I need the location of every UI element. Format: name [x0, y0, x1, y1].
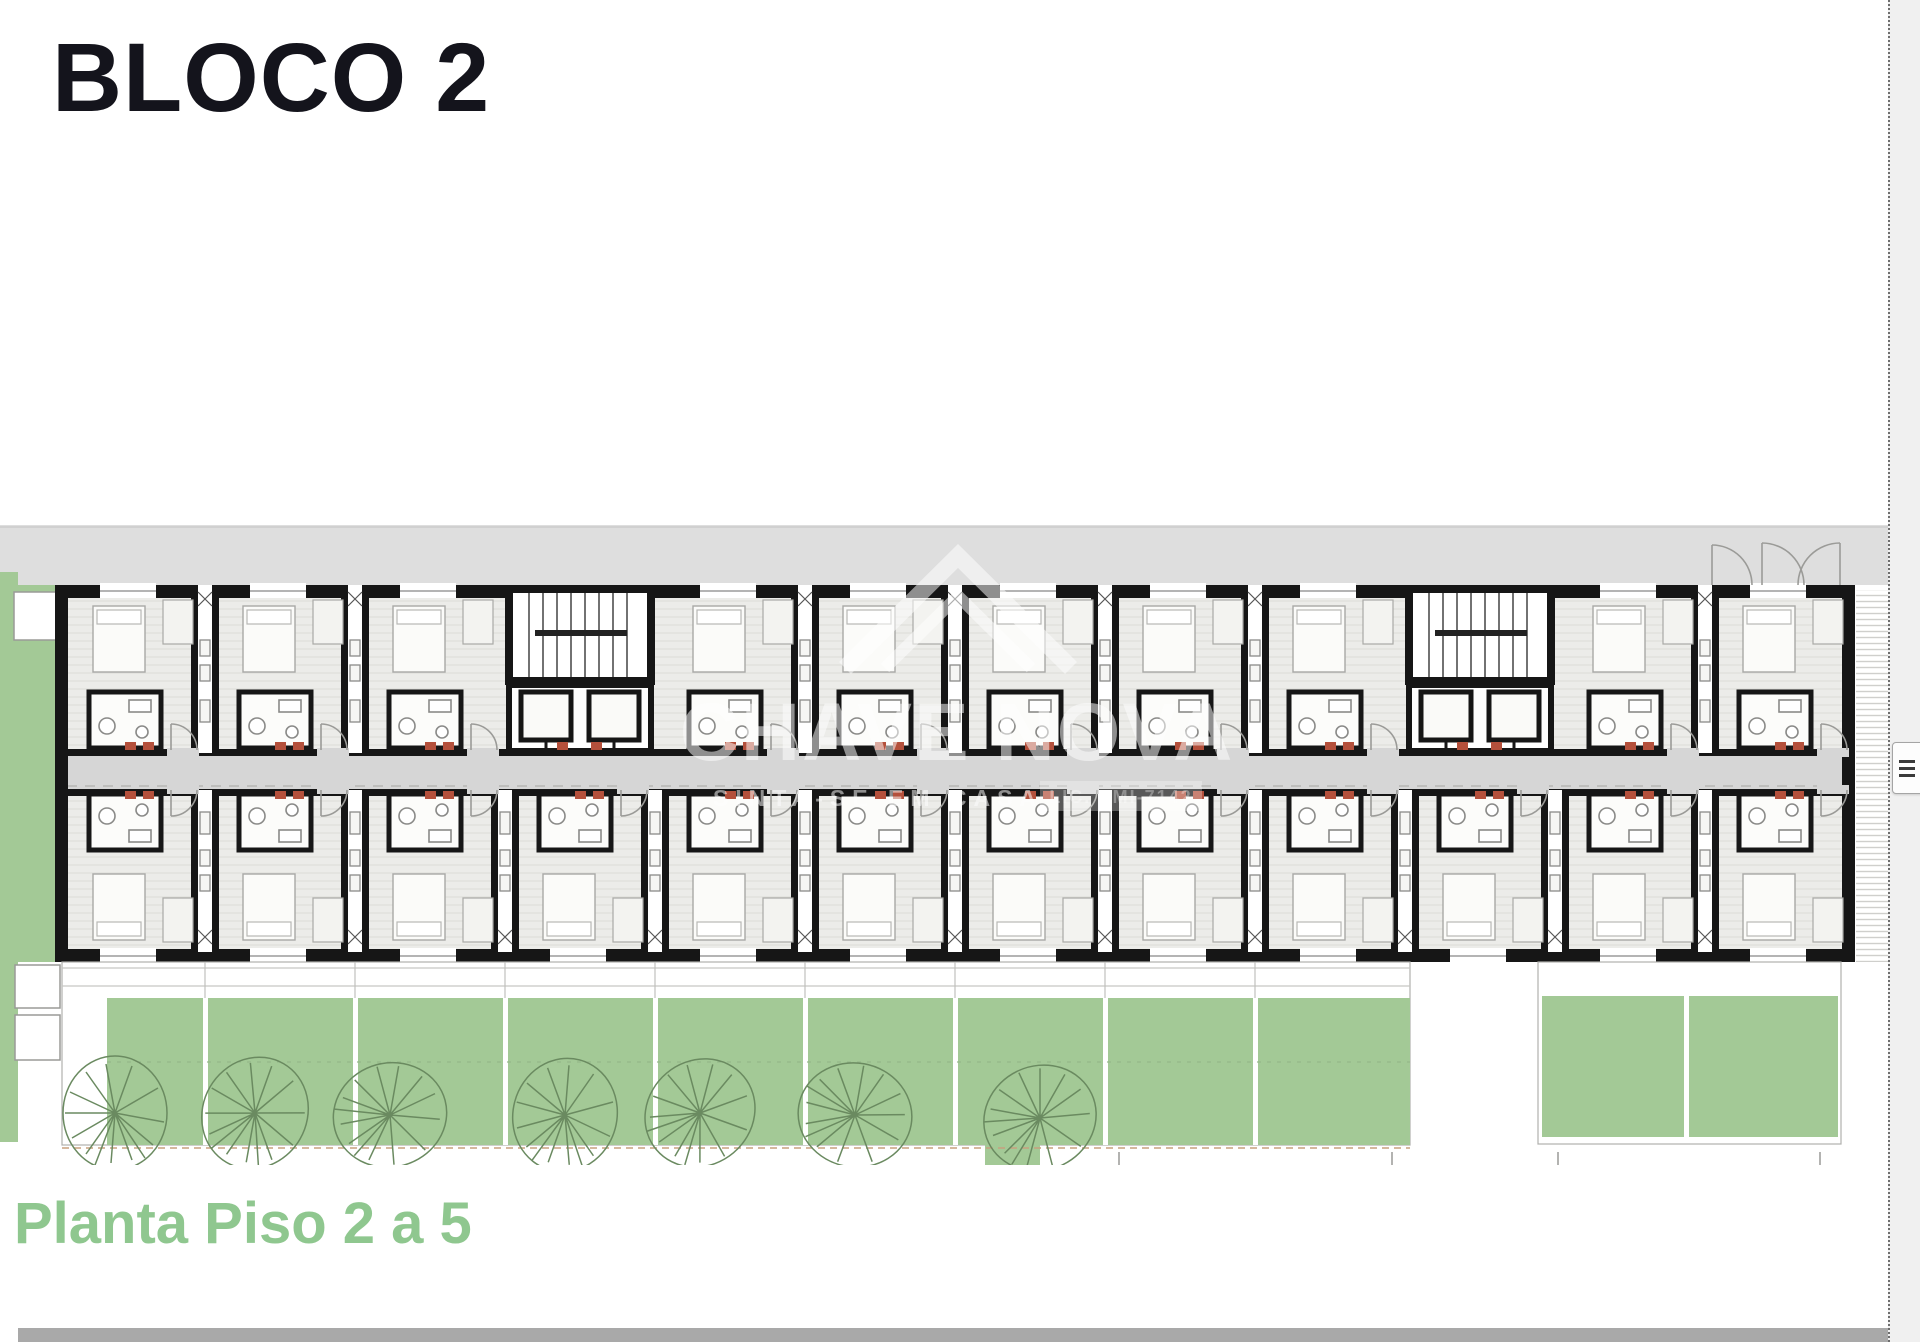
unit-divider	[1391, 790, 1419, 952]
unit-divider	[1241, 790, 1269, 952]
watermark-brand: CHAVE NOVA	[680, 687, 1235, 778]
unit-divider	[1541, 790, 1569, 952]
unit-divider	[191, 585, 219, 753]
grip-lines-icon	[1899, 760, 1915, 777]
site-lines	[62, 1148, 1820, 1165]
page-title: BLOCO 2	[52, 22, 490, 134]
unit-divider	[1691, 585, 1719, 753]
unit-divider	[941, 790, 969, 952]
floor-plan-drawing: CHAVE NOVA SINTA-SE EM CASA LIC. AMI-714…	[0, 525, 1888, 1165]
garden-band-right	[1538, 962, 1841, 1144]
watermark-license: LIC. AMI-7142	[1049, 787, 1192, 807]
unit-divider	[341, 585, 369, 753]
unit-divider	[1091, 790, 1119, 952]
page-margin[interactable]	[1888, 0, 1920, 1342]
unit-divider	[1691, 790, 1719, 952]
floor-plan-area: CHAVE NOVA SINTA-SE EM CASA LIC. AMI-714…	[0, 525, 1888, 1165]
unit-divider	[491, 790, 519, 952]
watermark-tagline: SINTA-SE EM CASA	[713, 785, 1043, 811]
storage-boxes	[15, 965, 60, 1060]
unit-divider	[341, 790, 369, 952]
garden-band-left	[107, 998, 1410, 1165]
unit-divider	[1241, 585, 1269, 753]
stair-core	[509, 589, 651, 751]
deck-stripes	[1856, 590, 1888, 962]
unit-divider	[641, 790, 669, 952]
scroll-handle-button[interactable]	[1892, 742, 1920, 794]
unit-divider	[191, 790, 219, 952]
bottom-bar	[18, 1328, 1888, 1342]
plan-caption: Planta Piso 2 a 5	[14, 1190, 472, 1257]
stair-core	[1409, 589, 1551, 751]
unit-divider	[791, 790, 819, 952]
document-page: BLOCO 2	[0, 0, 1920, 1342]
